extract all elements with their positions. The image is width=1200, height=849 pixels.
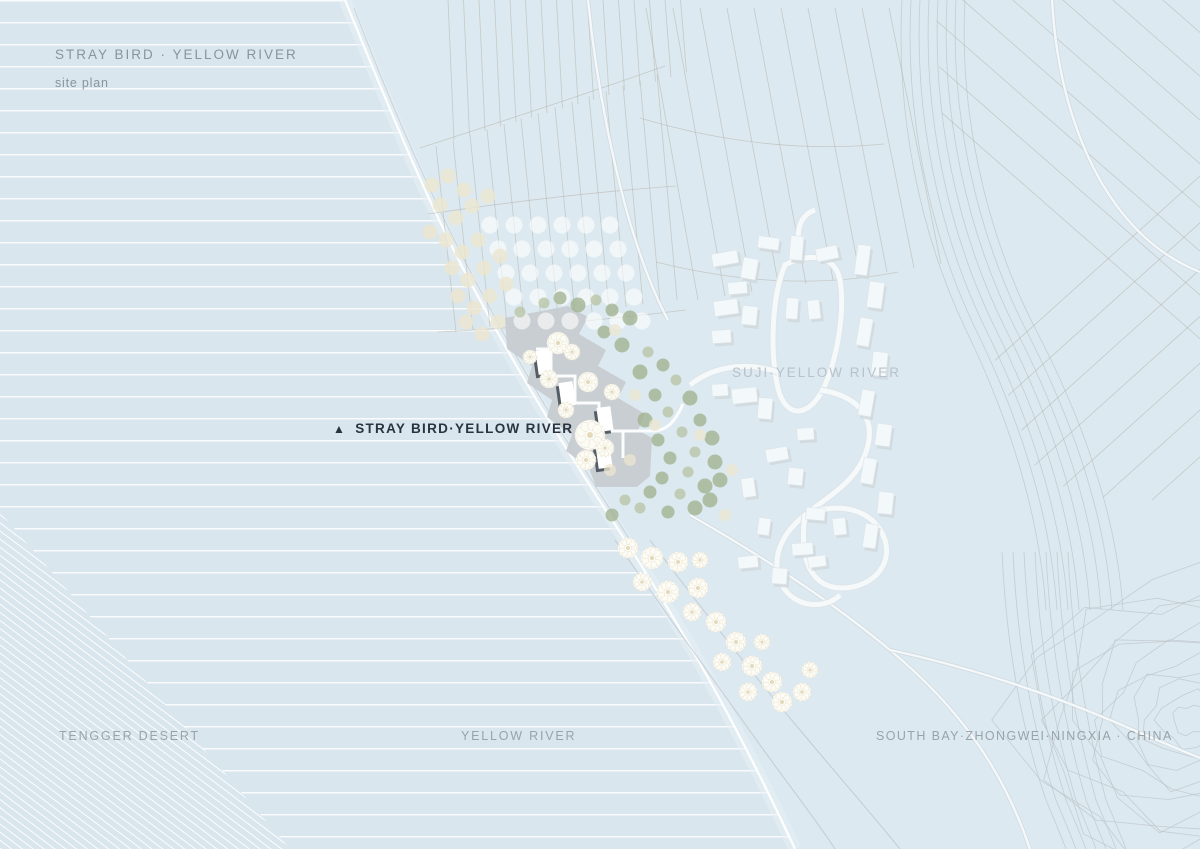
flower-tree	[558, 402, 574, 418]
river-label: YELLOW RIVER	[461, 729, 576, 743]
flower-center	[564, 408, 567, 411]
village-building	[741, 477, 759, 501]
green-tree	[633, 365, 648, 380]
village-building	[789, 235, 807, 263]
building-roof	[806, 507, 826, 521]
village-building	[771, 567, 790, 587]
building-roof	[832, 517, 847, 535]
flower-petal	[811, 664, 816, 669]
green-tree	[606, 304, 619, 317]
flower-tree	[726, 632, 746, 652]
village-building	[832, 517, 850, 539]
title-block: STRAY BIRD · YELLOW RIVER site plan	[55, 47, 298, 90]
flower-center	[746, 690, 750, 694]
flower-center	[586, 380, 590, 384]
building-roof	[785, 298, 798, 320]
flower-center	[734, 640, 738, 644]
cream-tree	[433, 198, 448, 213]
orchard-tree	[506, 217, 523, 234]
flower-tree	[692, 552, 708, 568]
flower-center	[698, 558, 701, 561]
flower-petal	[694, 606, 699, 611]
flower-petal	[654, 550, 661, 557]
cream-tree	[461, 273, 476, 288]
building-roof	[792, 542, 814, 555]
cream-tree	[609, 324, 621, 336]
village-building	[757, 397, 776, 422]
green-tree	[698, 479, 713, 494]
cream-tree	[649, 419, 661, 431]
orchard-tree	[626, 289, 643, 306]
flower-petal	[593, 425, 602, 434]
green-tree	[683, 467, 694, 478]
flower-tree	[739, 683, 757, 701]
flower-tree	[706, 612, 726, 632]
green-tree	[554, 292, 567, 305]
orchard-tree	[594, 265, 611, 282]
orchard-tree	[538, 313, 555, 330]
orchard-tree	[618, 265, 635, 282]
building-roof	[771, 567, 787, 584]
village-building	[805, 507, 828, 524]
green-tree	[635, 503, 646, 514]
green-tree	[598, 326, 611, 339]
flower-center	[640, 580, 644, 584]
flower-center	[770, 680, 774, 684]
green-tree	[643, 347, 654, 358]
flower-tree	[633, 573, 651, 591]
flower-tree	[523, 350, 537, 364]
flower-center	[750, 664, 754, 668]
orchard-tree	[602, 217, 619, 234]
building-roof	[712, 329, 732, 343]
orchard-tree	[562, 313, 579, 330]
orchard-tree	[546, 265, 563, 282]
flower-petal	[804, 686, 809, 691]
flower-tree	[772, 692, 792, 712]
cream-tree	[719, 509, 731, 521]
village-building	[787, 467, 806, 489]
flower-tree	[802, 662, 818, 678]
building-roof	[757, 517, 771, 536]
building-roof	[875, 423, 893, 447]
orchard-tree	[522, 265, 539, 282]
green-tree	[623, 311, 638, 326]
green-tree	[690, 447, 701, 458]
flower-tree	[641, 547, 663, 569]
green-tree	[657, 359, 670, 372]
region-label: SOUTH BAY·ZHONGWEI·NINGXIA · CHINA	[876, 729, 1173, 743]
flower-tree	[668, 552, 688, 572]
flower-tree	[683, 603, 701, 621]
green-tree	[649, 389, 662, 402]
page-subtitle: site plan	[55, 76, 298, 90]
flower-petal	[531, 352, 535, 356]
cream-tree	[604, 464, 616, 476]
flower-petal	[630, 541, 636, 547]
building-roof	[789, 235, 804, 260]
desert-label: TENGGER DESERT	[59, 729, 200, 743]
cream-tree	[455, 245, 470, 260]
orchard-tree	[586, 241, 603, 258]
green-tree	[652, 434, 665, 447]
flower-center	[626, 546, 630, 550]
green-tree	[620, 495, 631, 506]
flower-tree	[596, 439, 614, 457]
building-roof	[728, 281, 748, 295]
building-roof	[807, 299, 821, 319]
building-roof	[807, 555, 826, 568]
cream-tree	[493, 249, 508, 264]
flower-petal	[700, 581, 706, 587]
village-building	[713, 298, 742, 320]
green-tree	[708, 455, 723, 470]
cream-tree	[459, 315, 474, 330]
building-roof	[787, 467, 804, 485]
cream-tree	[491, 315, 506, 330]
orchard-tree	[562, 241, 579, 258]
building-roof	[737, 555, 758, 569]
flower-center	[696, 586, 700, 590]
flower-petal	[670, 584, 677, 591]
flower-petal	[784, 695, 790, 701]
building-roof	[712, 384, 729, 397]
flower-center	[584, 458, 588, 462]
flower-tree	[762, 672, 782, 692]
green-tree	[662, 506, 675, 519]
flower-center	[690, 610, 694, 614]
building-roof	[797, 427, 815, 440]
village-label: SUJI·YELLOW RIVER	[732, 365, 901, 380]
flower-petal	[644, 576, 649, 581]
green-tree	[656, 472, 669, 485]
flower-tree	[576, 450, 596, 470]
flower-center	[780, 700, 784, 704]
flower-center	[650, 556, 654, 560]
green-tree	[694, 414, 707, 427]
flower-petal	[754, 659, 760, 665]
triangle-marker-icon: ▲	[333, 423, 346, 435]
cream-tree	[624, 454, 636, 466]
orchard-tree	[578, 217, 595, 234]
flower-tree	[604, 384, 620, 400]
flower-petal	[701, 554, 706, 559]
orchard-tree	[514, 241, 531, 258]
flower-petal	[724, 656, 729, 661]
flower-tree	[564, 344, 580, 360]
flower-tree	[540, 370, 558, 388]
cream-tree	[499, 277, 514, 292]
building-roof	[731, 387, 757, 405]
flower-petal	[567, 404, 572, 409]
flower-center	[720, 660, 724, 664]
cream-tree	[451, 289, 466, 304]
cream-tree	[477, 261, 492, 276]
site-plan-map	[0, 0, 1200, 849]
flower-tree	[713, 653, 731, 671]
building-roof	[713, 298, 739, 316]
page-title: STRAY BIRD · YELLOW RIVER	[55, 47, 298, 62]
green-tree	[675, 489, 686, 500]
cream-tree	[471, 233, 486, 248]
flower-petal	[718, 615, 724, 621]
green-tree	[571, 298, 586, 313]
flower-tree	[742, 656, 762, 676]
village-building	[877, 491, 897, 518]
flower-petal	[551, 373, 556, 378]
flower-center	[529, 356, 532, 359]
village-building	[731, 386, 760, 407]
cream-tree	[445, 261, 460, 276]
flower-petal	[774, 675, 780, 681]
site-marker-label: STRAY BIRD·YELLOW RIVER	[355, 421, 573, 436]
cream-tree	[441, 169, 456, 184]
flower-tree	[657, 581, 679, 603]
flower-center	[800, 690, 804, 694]
green-tree	[677, 427, 688, 438]
cream-tree	[467, 301, 482, 316]
flower-tree	[578, 372, 598, 392]
cream-tree	[475, 327, 490, 342]
village-building	[807, 299, 824, 322]
green-tree	[539, 298, 550, 309]
green-tree	[703, 493, 718, 508]
flower-petal	[750, 686, 755, 691]
flower-tree	[618, 538, 638, 558]
green-tree	[515, 307, 526, 318]
green-tree	[591, 295, 602, 306]
cream-tree	[726, 464, 738, 476]
flower-petal	[560, 335, 567, 342]
cream-tree	[439, 233, 454, 248]
cream-tree	[629, 389, 641, 401]
site-marker: ▲ STRAY BIRD·YELLOW RIVER	[333, 421, 573, 436]
cream-tree	[423, 225, 438, 240]
cream-tree	[694, 429, 706, 441]
orchard-tree	[610, 241, 627, 258]
flower-center	[547, 377, 551, 381]
cream-tree	[483, 289, 498, 304]
building-roof	[866, 281, 884, 309]
flower-center	[587, 432, 593, 438]
flower-tree	[793, 683, 811, 701]
orchard-tree	[530, 217, 547, 234]
flower-petal	[590, 375, 596, 381]
flower-center	[570, 350, 573, 353]
cream-tree	[425, 178, 440, 193]
building-roof	[741, 305, 758, 325]
green-tree	[688, 501, 703, 516]
green-tree	[713, 473, 728, 488]
village-building	[741, 305, 761, 329]
flower-center	[603, 446, 607, 450]
green-tree	[671, 375, 682, 386]
flower-petal	[573, 346, 578, 351]
building-roof	[757, 236, 779, 251]
green-tree	[683, 391, 698, 406]
flower-center	[808, 668, 811, 671]
orchard-tree	[570, 265, 587, 282]
green-tree	[663, 407, 674, 418]
flower-petal	[680, 555, 686, 561]
building-roof	[740, 257, 758, 280]
orchard-tree	[482, 217, 499, 234]
flower-center	[610, 390, 613, 393]
flower-tree	[754, 634, 770, 650]
flower-center	[666, 590, 670, 594]
flower-center	[714, 620, 718, 624]
green-tree	[644, 486, 657, 499]
village-building	[874, 423, 895, 450]
green-tree	[705, 431, 720, 446]
cream-tree	[481, 189, 496, 204]
flower-tree	[688, 578, 708, 598]
cream-tree	[449, 211, 464, 226]
flower-center	[676, 560, 680, 564]
green-tree	[615, 338, 630, 353]
flower-petal	[588, 453, 594, 459]
orchard-tree	[554, 217, 571, 234]
cream-tree	[465, 199, 480, 214]
flower-petal	[613, 386, 618, 391]
flower-petal	[763, 636, 768, 641]
flower-petal	[738, 635, 744, 641]
orchard-tree	[602, 289, 619, 306]
building-roof	[757, 397, 773, 419]
building-roof	[877, 491, 894, 514]
orchard-tree	[538, 241, 555, 258]
green-tree	[664, 452, 677, 465]
village-building	[792, 542, 816, 559]
flower-center	[760, 640, 763, 643]
green-tree	[606, 509, 619, 522]
village-building	[785, 298, 801, 323]
cream-tree	[457, 183, 472, 198]
building-roof	[741, 477, 757, 498]
flower-center	[556, 341, 560, 345]
flower-petal	[607, 442, 612, 447]
site-plan-canvas: STRAY BIRD · YELLOW RIVER site plan ▲ ST…	[0, 0, 1200, 849]
